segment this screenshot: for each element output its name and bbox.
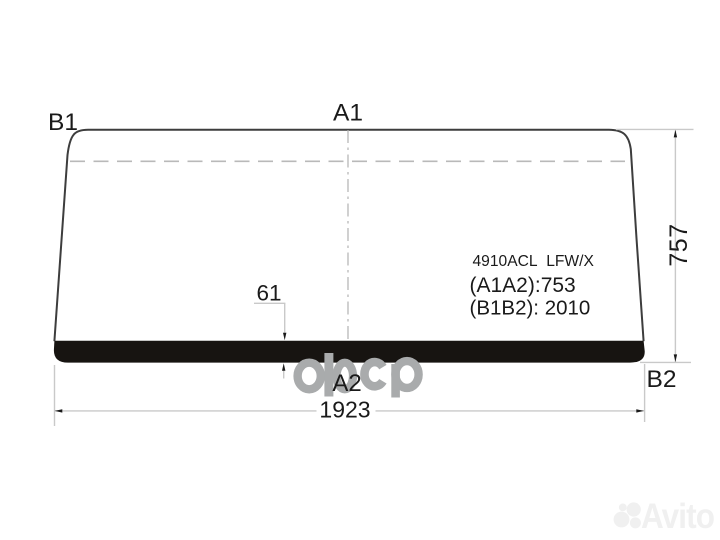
svg-text:Avito: Avito bbox=[641, 498, 715, 537]
svg-text:A1: A1 bbox=[333, 99, 363, 126]
svg-text:757: 757 bbox=[665, 223, 693, 266]
svg-text:B1: B1 bbox=[48, 109, 78, 136]
svg-text:4910ACL LFW/X: 4910ACL LFW/X bbox=[473, 253, 595, 270]
svg-text:(A1A2):753: (A1A2):753 bbox=[470, 274, 576, 297]
svg-text:(B1B2): 2010: (B1B2): 2010 bbox=[470, 297, 591, 320]
svg-text:1923: 1923 bbox=[319, 397, 370, 423]
svg-text:61: 61 bbox=[256, 280, 281, 305]
svg-text:B2: B2 bbox=[647, 366, 677, 393]
svg-text:A2: A2 bbox=[332, 370, 361, 397]
